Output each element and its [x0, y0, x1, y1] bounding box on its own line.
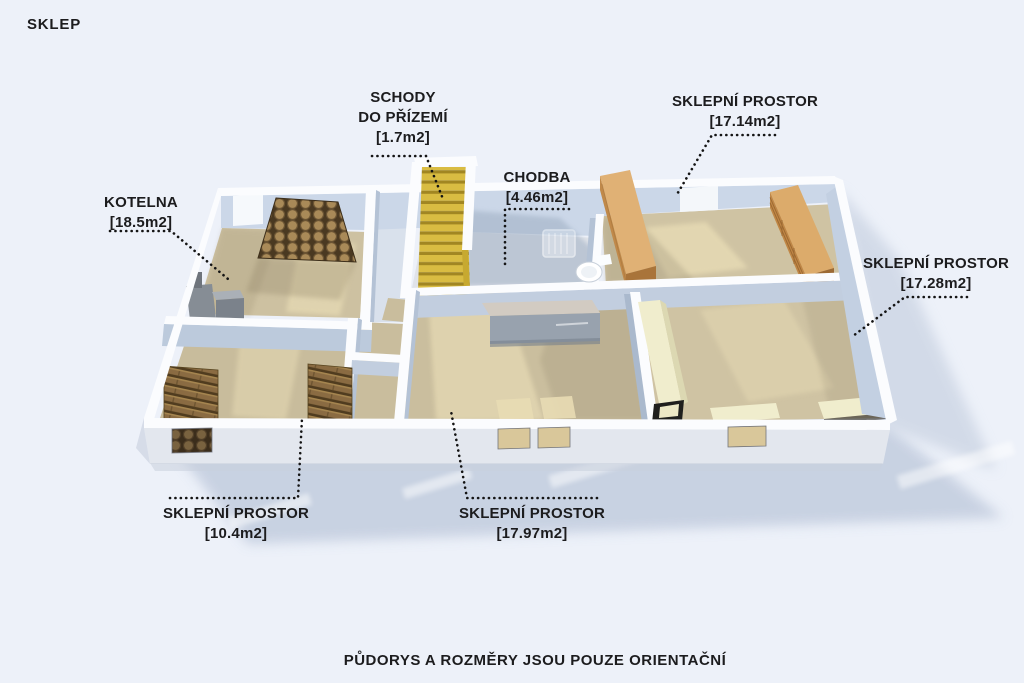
- room-name: SKLEPNÍ PROSTOR: [163, 504, 309, 524]
- exterior-plinth: [150, 463, 883, 471]
- room-17-14-door: [680, 186, 718, 212]
- floorplan-rendering: [0, 0, 1024, 683]
- room-name: CHODBA: [503, 168, 570, 188]
- room-name: SCHODY: [358, 88, 448, 108]
- room-area: [17.28m2]: [863, 274, 1009, 294]
- room-area: [17.14m2]: [672, 112, 818, 132]
- window: [498, 428, 530, 449]
- room-area: [18.5m2]: [104, 213, 178, 233]
- room-area: [17.97m2]: [459, 524, 605, 544]
- room-area: [1.7m2]: [358, 128, 448, 148]
- sideboard: [482, 300, 600, 347]
- stair-treads: [418, 167, 470, 290]
- disclaimer-text: PŮDORYS A ROZMĚRY JSOU POUZE ORIENTAČNÍ: [344, 652, 727, 669]
- kotelna-back-door: [233, 194, 263, 226]
- wood-stack-left: [164, 366, 218, 424]
- toilet-seat: [581, 266, 597, 278]
- room-label-kotelna: KOTELNA [18.5m2]: [104, 193, 178, 233]
- room-label-sklepni-10-4: SKLEPNÍ PROSTOR [10.4m2]: [163, 504, 309, 544]
- window-logs-tint: [172, 428, 212, 453]
- window: [538, 427, 570, 448]
- room-area: [10.4m2]: [163, 524, 309, 544]
- floorplan-page: SKLEP KOTELNA [18.5m2] SCHODY DO PŘÍZEMÍ…: [0, 0, 1024, 683]
- room-label-schody: SCHODY DO PŘÍZEMÍ [1.7m2]: [358, 88, 448, 148]
- room-name: SKLEPNÍ PROSTOR: [863, 254, 1009, 274]
- toilet-tank: [596, 254, 612, 266]
- room-name: DO PŘÍZEMÍ: [358, 108, 448, 128]
- room-name: KOTELNA: [104, 193, 178, 213]
- staircase: [400, 156, 478, 302]
- room-label-chodba: CHODBA [4.46m2]: [503, 168, 570, 208]
- window-light: [540, 396, 576, 419]
- room-label-sklepni-17-28: SKLEPNÍ PROSTOR [17.28m2]: [863, 254, 1009, 294]
- window: [728, 426, 766, 447]
- page-title: SKLEP: [27, 16, 81, 33]
- window-light: [496, 398, 534, 421]
- room-area: [4.46m2]: [503, 188, 570, 208]
- room-label-sklepni-17-97: SKLEPNÍ PROSTOR [17.97m2]: [459, 504, 605, 544]
- room-label-sklepni-17-14: SKLEPNÍ PROSTOR [17.14m2]: [672, 92, 818, 132]
- room-name: SKLEPNÍ PROSTOR: [459, 504, 605, 524]
- room-name: SKLEPNÍ PROSTOR: [672, 92, 818, 112]
- radiator-ghost: [543, 230, 575, 257]
- wood-stack-right: [308, 364, 352, 423]
